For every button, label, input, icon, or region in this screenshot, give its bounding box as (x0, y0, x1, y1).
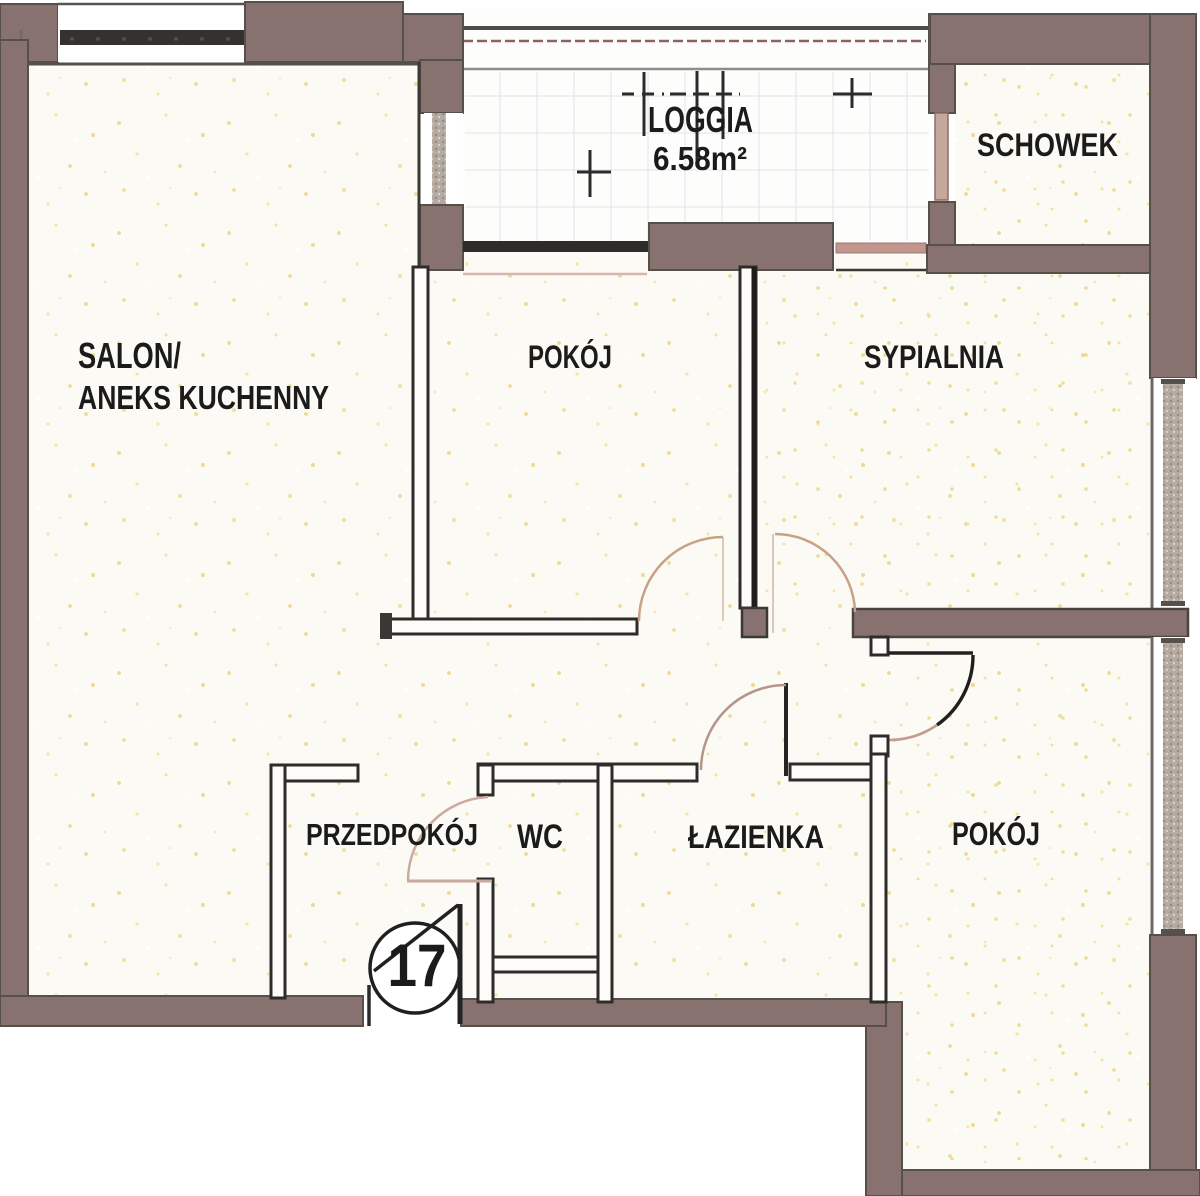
svg-text:SYPIALNIA: SYPIALNIA (864, 339, 1004, 375)
svg-text:SALON/: SALON/ (78, 335, 181, 376)
svg-text:LOGGIA: LOGGIA (648, 99, 753, 140)
svg-text:ANEKS KUCHENNY: ANEKS KUCHENNY (78, 379, 329, 416)
svg-text:17: 17 (388, 932, 447, 999)
svg-text:PRZEDPOKÓJ: PRZEDPOKÓJ (306, 816, 478, 852)
svg-text:SCHOWEK: SCHOWEK (977, 127, 1118, 163)
svg-text:POKÓJ: POKÓJ (528, 339, 612, 375)
svg-text:ŁAZIENKA: ŁAZIENKA (688, 819, 824, 855)
svg-text:6.58m²: 6.58m² (653, 140, 747, 177)
svg-text:WC: WC (517, 818, 563, 856)
svg-text:POKÓJ: POKÓJ (952, 816, 1040, 852)
